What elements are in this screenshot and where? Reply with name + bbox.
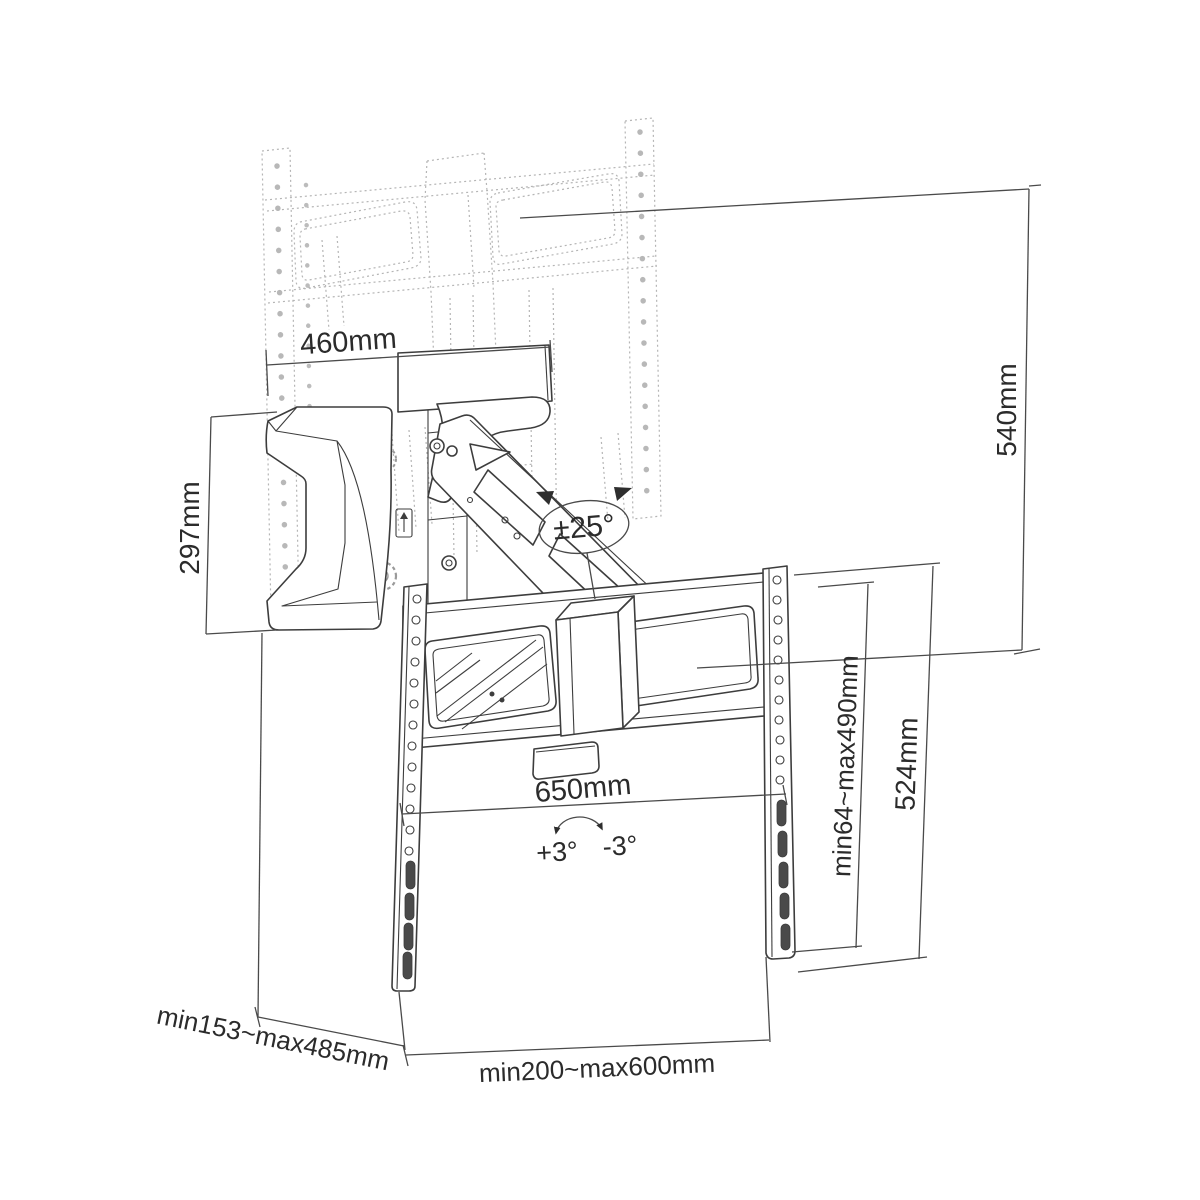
dim-vesa-width — [403, 957, 770, 1066]
dim-label-460: 460mm — [299, 323, 398, 362]
vesa-width-range-label: min200~max600mm — [478, 1048, 715, 1088]
dim-depth-range — [255, 633, 405, 1050]
right-vesa-rail — [763, 566, 795, 959]
left-vesa-rail — [392, 584, 427, 991]
diagram-canvas: 460mm 540mm 297mm ±25° 650mm +3° -3° min… — [0, 0, 1200, 1200]
up-arrow-plate — [396, 509, 412, 537]
extension-range-label: min153~max485mm — [154, 1000, 392, 1077]
motor-housing — [266, 407, 392, 630]
tilt-plus-label: +3° — [535, 836, 578, 868]
dim-label-540: 540mm — [991, 363, 1022, 456]
center-block — [556, 596, 639, 736]
tv-mount-dimension-diagram: 460mm 540mm 297mm ±25° 650mm +3° -3° min… — [0, 0, 1200, 1200]
dim-label-297: 297mm — [174, 481, 205, 574]
dim-label-524: 524mm — [889, 717, 923, 811]
tilt-arc — [556, 817, 602, 833]
swivel-range-label: ±25° — [552, 508, 616, 546]
tilt-minus-label: -3° — [602, 830, 638, 862]
vesa-height-range-label: min64~max490mm — [826, 655, 864, 878]
